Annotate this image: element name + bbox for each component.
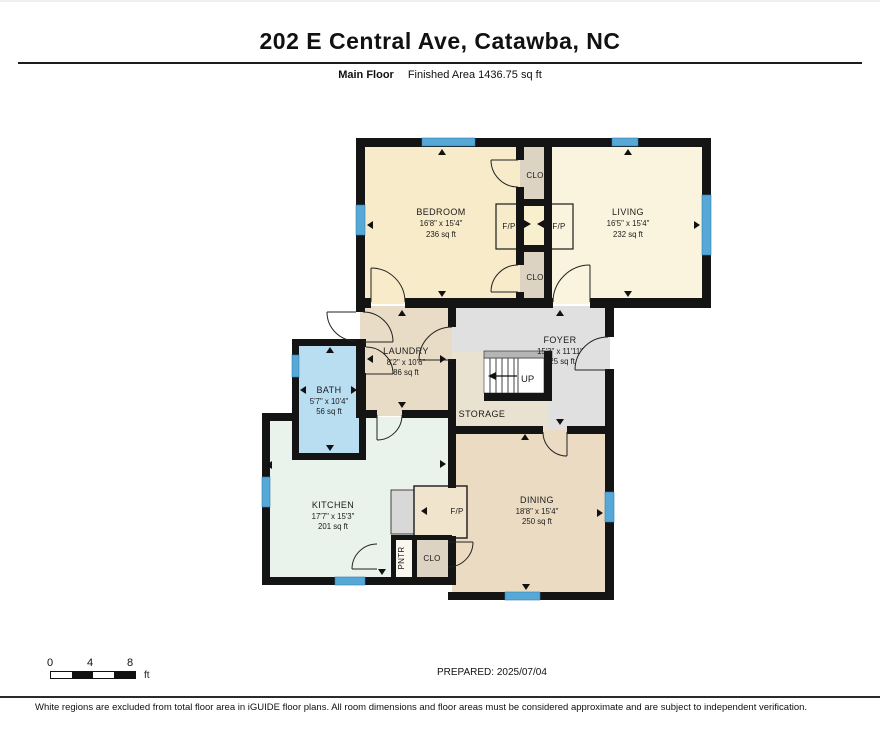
dining-label: DINING: [520, 495, 554, 505]
fireplace-dining-label: F/P: [450, 507, 463, 516]
kitchen-sqft: 201 sq ft: [318, 522, 349, 531]
window-bedroom-top: [422, 138, 475, 146]
disclaimer-text: White regions are excluded from total fl…: [35, 702, 845, 713]
kitchen-dims: 17'7" x 15'3": [312, 512, 355, 521]
closet-bottom-label: CLO: [526, 273, 543, 282]
laundry-dims: 8'2" x 10'6": [387, 358, 426, 367]
fireplace-right-label: F/P: [552, 222, 565, 231]
bath-label: BATH: [317, 385, 342, 395]
staircase: [484, 351, 552, 393]
window-living-top: [612, 138, 638, 146]
closet-kitchen-label: CLO: [423, 554, 440, 563]
foyer-dims: 15'3" x 11'11": [537, 347, 583, 356]
scale-bar: 0 4 8 ft: [44, 657, 164, 683]
scale-bar-segments: [50, 671, 136, 679]
dining-dims: 18'8" x 15'4": [516, 507, 559, 516]
laundry-label: LAUNDRY: [383, 346, 429, 356]
stairs-up-label: UP: [521, 374, 534, 385]
storage-label: STORAGE: [459, 409, 506, 419]
bedroom-sqft: 236 sq ft: [426, 230, 457, 239]
scale-tick-4: 4: [84, 657, 96, 669]
scale-unit-label: ft: [144, 670, 150, 681]
prepared-date: PREPARED: 2025/07/04: [437, 667, 547, 678]
laundry-sqft: 86 sq ft: [393, 368, 419, 377]
foyer-label: FOYER: [543, 335, 576, 345]
window-dining-right: [605, 492, 614, 522]
fireplace-left-label: F/P: [502, 222, 515, 231]
living-label: LIVING: [612, 207, 644, 217]
living-dims: 16'5" x 15'4": [607, 219, 650, 228]
bedroom-dims: 16'8" x 15'4": [420, 219, 463, 228]
scale-tick-8: 8: [124, 657, 136, 669]
window-living-right: [702, 195, 711, 255]
dining-sqft: 250 sq ft: [522, 517, 553, 526]
pantry-label: PNTR: [397, 547, 406, 570]
window-kitchen-left: [262, 477, 270, 507]
floorplan-page: { "header": { "title": "202 E Central Av…: [0, 0, 880, 749]
window-kitchen-bottom: [335, 577, 365, 585]
closet-top-label: CLO: [526, 171, 543, 180]
living-sqft: 232 sq ft: [613, 230, 644, 239]
bedroom-label: BEDROOM: [416, 207, 465, 217]
floorplan-drawing: BEDROOM 16'8" x 15'4" 236 sq ft LIVING 1…: [0, 2, 880, 749]
window-bath-left: [292, 355, 299, 377]
bath-dims: 5'7" x 10'4": [310, 397, 349, 406]
scale-tick-0: 0: [44, 657, 56, 669]
window-dining-bottom: [505, 592, 540, 600]
kitchen-label: KITCHEN: [312, 500, 354, 510]
kitchen-counter-box: [391, 490, 414, 534]
window-bedroom-left: [356, 205, 365, 235]
footer-divider: [0, 696, 880, 698]
foyer-sqft: 125 sq ft: [545, 357, 576, 366]
bath-sqft: 56 sq ft: [316, 407, 342, 416]
